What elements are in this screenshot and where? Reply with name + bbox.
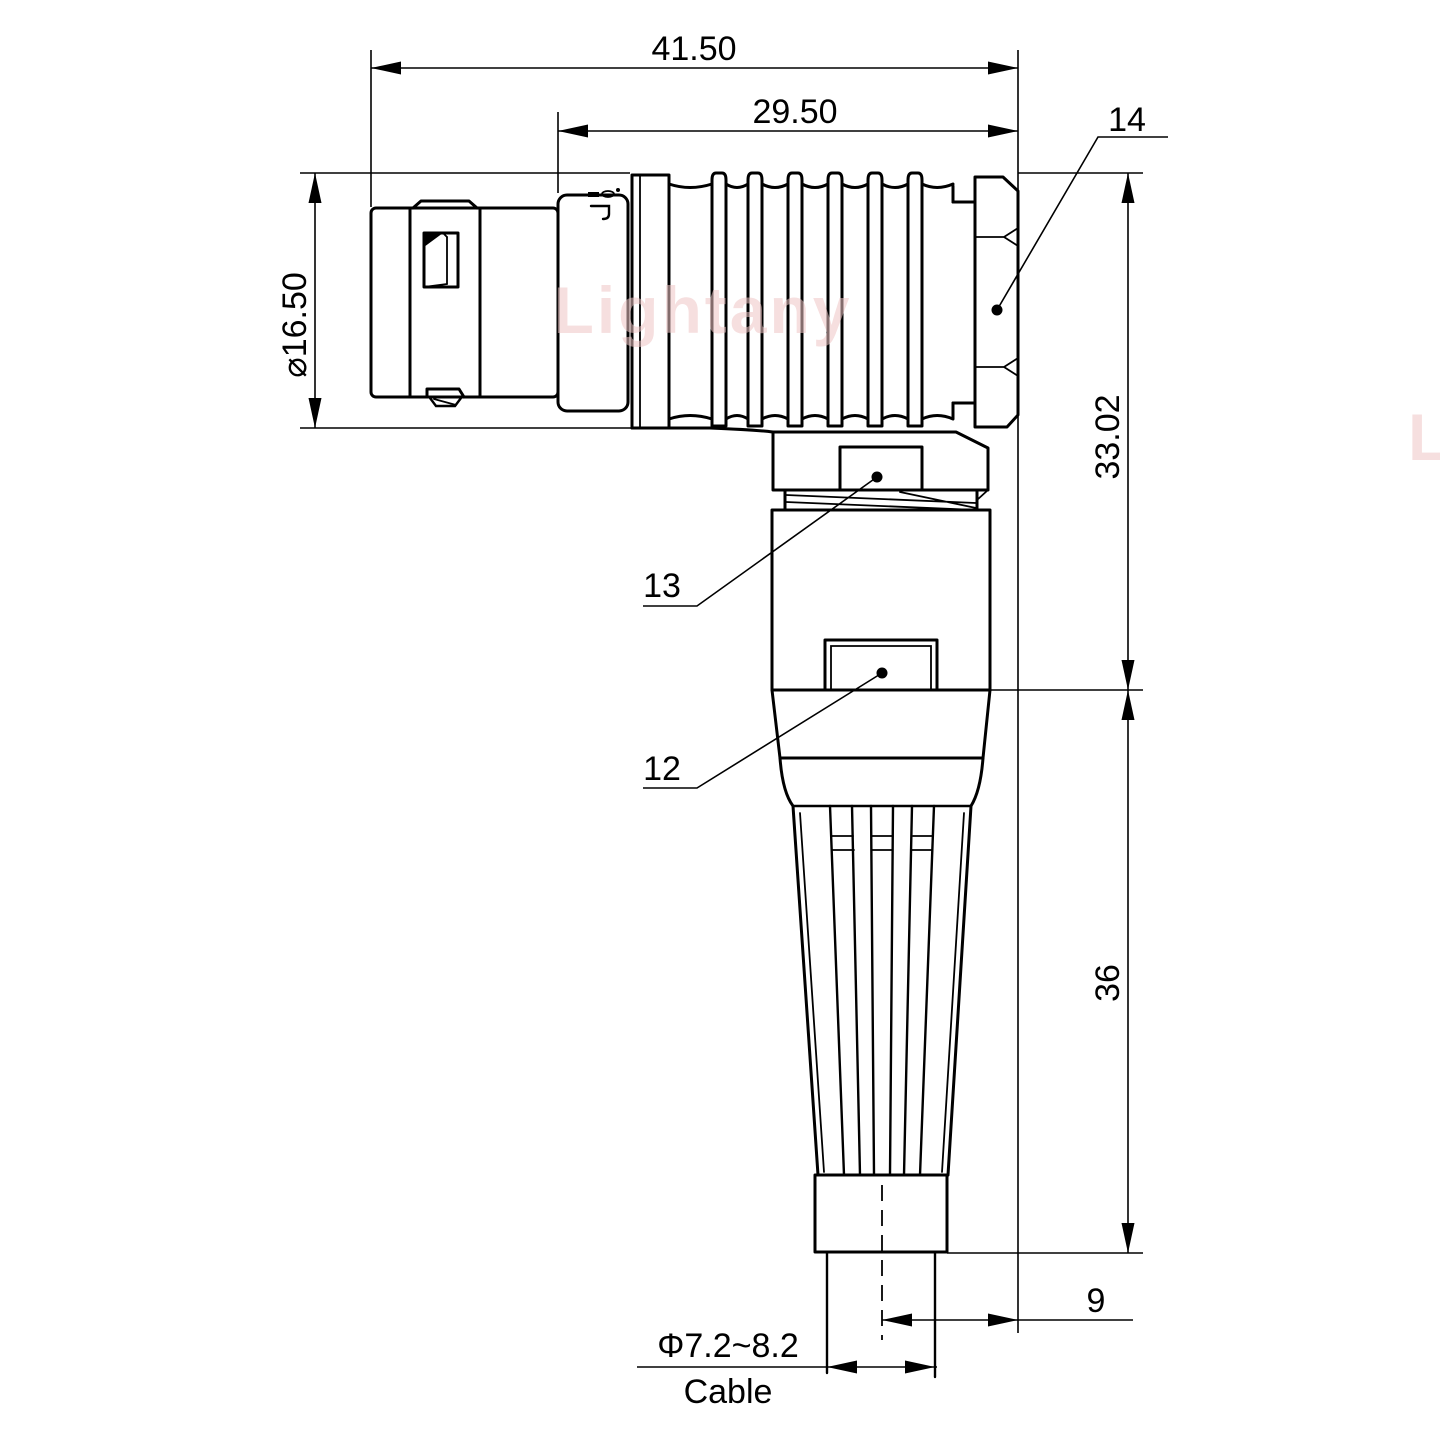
arrowhead [988, 62, 1018, 75]
plug-barrel [371, 201, 558, 406]
drawing-canvas: 41.50 29.50 ⌀16.50 33.02 36 [0, 0, 1440, 1440]
arrowhead [309, 173, 322, 203]
arrowhead [1122, 173, 1135, 203]
dim-cable-diameter: Φ7.2~8.2 Cable [637, 1327, 937, 1411]
grip-rib [868, 173, 882, 426]
dim-cable-diameter-text: Φ7.2~8.2 [657, 1327, 799, 1365]
arrowhead [1122, 660, 1135, 690]
arrowhead [1122, 690, 1135, 720]
cable-label-text: Cable [684, 1373, 773, 1411]
hex-nut [975, 177, 1018, 427]
arrowhead [882, 1314, 912, 1327]
watermark-text: Lightany [554, 273, 853, 347]
arrowhead [905, 1361, 935, 1374]
shell-body [772, 510, 990, 690]
leader-dot [877, 668, 888, 679]
thread-ring [785, 490, 988, 510]
boot-right-edge [948, 806, 971, 1175]
part-label-12: 12 [643, 750, 681, 788]
dim-rear-section: 29.50 [558, 93, 1018, 138]
arrowhead [827, 1361, 857, 1374]
arrowhead [1122, 1223, 1135, 1253]
cable-bushing [815, 1175, 947, 1252]
dim-shell-diameter: ⌀16.50 [276, 173, 322, 428]
dim-overall-length-text: 41.50 [651, 30, 736, 68]
dim-axis-offset: 9 [882, 1282, 1133, 1327]
strain-relief-boot [772, 690, 990, 1252]
grip-bottom-edge [632, 428, 773, 432]
leader-dot [992, 305, 1003, 316]
part-label-13: 13 [643, 567, 681, 605]
dim-boot-length: 36 [1089, 690, 1135, 1253]
plug-barrel-outline [371, 208, 558, 397]
arrowhead [309, 398, 322, 428]
arrowhead [988, 125, 1018, 138]
dim-overall-length: 41.50 [371, 30, 1018, 75]
leader-dot [872, 472, 883, 483]
technical-drawing: 41.50 29.50 ⌀16.50 33.02 36 [0, 0, 1440, 1440]
dim-shell-diameter-text: ⌀16.50 [276, 272, 314, 378]
boot-left-edge [793, 806, 818, 1175]
arrowhead [988, 1314, 1018, 1327]
dim-boot-length-text: 36 [1089, 964, 1127, 1002]
rear-neck [953, 186, 975, 418]
hex-nut-outline [975, 177, 1018, 427]
cable-stub [827, 1252, 935, 1377]
thread-lines [786, 492, 976, 510]
watermark-text-edge: Lightany [1408, 400, 1440, 474]
part-label-14: 14 [1108, 101, 1146, 139]
leader-line [997, 137, 1168, 310]
shell-body-outline [772, 510, 990, 690]
boot-rib-slots [830, 806, 934, 1175]
arrowhead [371, 62, 401, 75]
dim-elbow-height: 33.02 [1089, 173, 1135, 690]
plug-key-window [424, 233, 458, 287]
collar-window [840, 447, 922, 490]
dim-rear-section-text: 29.50 [752, 93, 837, 131]
vertical-body [772, 432, 990, 1377]
boot-web-lines [831, 836, 933, 850]
arrowhead [558, 125, 588, 138]
dim-axis-offset-text: 9 [1087, 1282, 1106, 1320]
collar-nut [773, 432, 988, 490]
dim-elbow-height-text: 33.02 [1089, 394, 1127, 479]
grip-rib [908, 173, 922, 426]
